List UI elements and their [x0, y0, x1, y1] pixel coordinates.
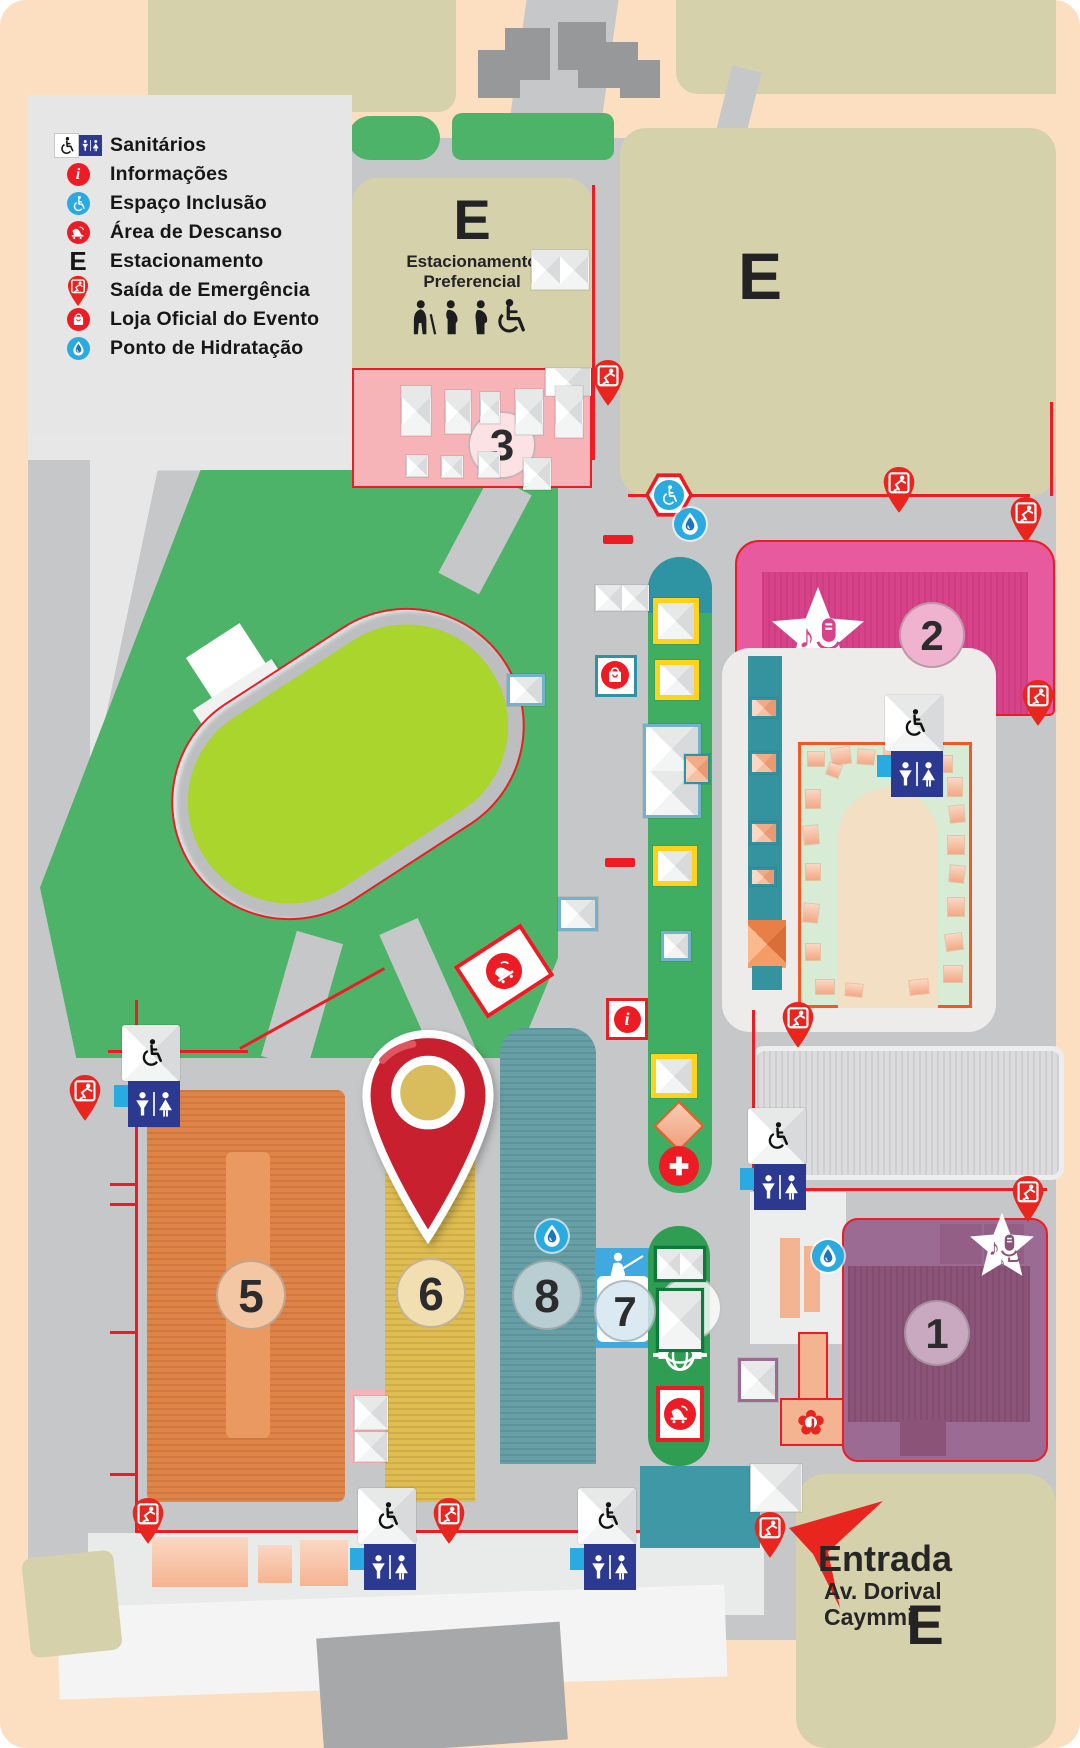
road-dash-2 [605, 858, 635, 867]
wheelchair-icon [372, 1499, 402, 1532]
parking-letter-icon: E [46, 247, 110, 276]
emergency-exit-pin [881, 465, 917, 515]
legend-label: Sanitários [110, 134, 206, 157]
food-stall [831, 747, 851, 765]
restrooms-cluster [358, 1488, 420, 1592]
parking-letter-top-right: E [700, 238, 820, 314]
preferential-letter: E [453, 192, 490, 248]
map-tile [653, 846, 697, 886]
event-venue-map: E E Estacionamento Preferencial ♪♪ i [0, 0, 1080, 1748]
food-stall [944, 966, 962, 982]
map-tile [441, 456, 463, 478]
legend-item-hidratacao: Ponto de Hidratação [46, 334, 340, 363]
map-tile [653, 598, 699, 644]
map-tile [558, 897, 598, 931]
emergency-exit-pin [752, 1510, 788, 1560]
map-tile [684, 754, 710, 784]
map-tile [750, 752, 778, 774]
hydration-icon [46, 334, 110, 363]
preferential-line2: Preferencial [423, 272, 520, 292]
stalls-teal-stub [752, 966, 782, 990]
khaki-sw-wedge [21, 1549, 123, 1658]
area-8-marker: 8 [512, 1260, 582, 1330]
map-tile [478, 452, 500, 478]
map-tile [480, 392, 500, 424]
flower-icon [796, 1408, 826, 1438]
area-2-marker: 2 [899, 602, 965, 668]
male-female-panel [584, 1544, 636, 1590]
emergency-exit-pin [780, 1000, 816, 1050]
rest-area-icon [46, 218, 110, 247]
rest-area-tile [656, 1386, 704, 1442]
legend-label: Saída de Emergência [110, 279, 310, 302]
area1-salmon-slab-1 [780, 1238, 800, 1318]
map-tile [595, 585, 649, 611]
legend-label: Área de Descanso [110, 221, 282, 244]
hydration-icon [536, 1220, 568, 1252]
legend-panel: Sanitários i Informações Espaço Inclusão… [28, 95, 352, 435]
restrooms-cluster [885, 695, 947, 799]
legend-item-saida-emergencia: Saída de Emergência [46, 276, 340, 305]
map-tile [445, 390, 471, 434]
purple-border-tile [738, 1358, 778, 1402]
emergency-exit-pin [1010, 1174, 1046, 1224]
map-tile [515, 389, 543, 435]
bottom-building-1 [152, 1537, 248, 1587]
location-pin-icon [352, 1026, 504, 1258]
food-stall [948, 898, 964, 916]
emergency-exit-pin [67, 1073, 103, 1123]
bottom-dark-road [316, 1622, 568, 1748]
legend-item-loja-oficial: Loja Oficial do Evento [46, 305, 340, 334]
emergency-exit-pin [130, 1496, 166, 1546]
boundary-tick [110, 1203, 138, 1206]
food-stall [845, 983, 862, 997]
green-strip-small [348, 116, 440, 160]
map-tile [523, 458, 551, 490]
food-stall [948, 778, 962, 796]
map-tile [750, 698, 778, 718]
map-tile [354, 1396, 388, 1430]
emergency-exit-icon [46, 276, 110, 305]
food-stall [803, 825, 819, 844]
entrance-street-2: Caymmi [824, 1604, 984, 1631]
map-tile [401, 386, 431, 436]
food-stall [909, 979, 928, 995]
map-tile [507, 674, 545, 706]
official-store-icon [46, 305, 110, 334]
first-aid-icon [659, 1146, 699, 1186]
male-female-panel [128, 1081, 180, 1127]
map-tile [661, 931, 691, 961]
info-icon: i [46, 160, 110, 189]
entrance-teal-bar [640, 1466, 760, 1548]
area-7-marker: 7 [594, 1280, 656, 1342]
boundary-tick [110, 1473, 138, 1476]
map-tile [750, 1464, 802, 1512]
food-stall [949, 865, 965, 882]
parking-lot-top-right [620, 128, 1056, 496]
wheelchair-icon [136, 1036, 166, 1069]
food-court-arch [838, 788, 938, 1008]
food-stall [945, 933, 963, 951]
legend-label: Estacionamento [110, 250, 263, 273]
boundary-tick [110, 1331, 138, 1334]
boundary-area3-right [592, 185, 595, 460]
wheelchair-icon [899, 706, 929, 739]
svg-text:♪: ♪ [998, 1255, 1005, 1272]
map-tile [354, 1432, 388, 1462]
map-tile [406, 455, 428, 477]
legend-label: Loja Oficial do Evento [110, 308, 319, 331]
food-stall [857, 749, 874, 764]
bottom-building-2 [258, 1545, 292, 1583]
food-stall [948, 836, 964, 854]
bottom-building-3 [300, 1540, 348, 1586]
emergency-exit-pin [590, 358, 626, 408]
boundary-tick [110, 1183, 138, 1186]
map-tile [654, 1246, 706, 1282]
official-store-icon [595, 655, 637, 697]
legend-label: Espaço Inclusão [110, 192, 267, 215]
emergency-exit-pin [1008, 495, 1044, 545]
map-tile [555, 386, 583, 438]
boundary-stage-right [1050, 402, 1053, 496]
emergency-exit-pin [1020, 678, 1056, 728]
restrooms-cluster [578, 1488, 640, 1592]
legend-item-informacoes: i Informações [46, 160, 340, 189]
food-stall [808, 752, 824, 766]
food-stall [806, 790, 820, 808]
map-tile [750, 868, 776, 886]
stalls-orange-tile [748, 920, 786, 968]
legend-label: Informações [110, 163, 228, 186]
map-tile [750, 822, 778, 844]
preferential-line1: Estacionamento [406, 252, 537, 272]
info-icon: i [606, 998, 648, 1040]
emergency-exit-pin [431, 1496, 467, 1546]
road-dash-1 [603, 535, 633, 544]
food-stall [803, 903, 819, 922]
legend-item-area-descanso: Área de Descanso [46, 218, 340, 247]
entrance-street-1: Av. Dorival [824, 1578, 1004, 1605]
restrooms-cluster [748, 1108, 810, 1212]
map-tile [651, 1054, 697, 1098]
wheelchair-icon [592, 1499, 622, 1532]
map-tile [655, 660, 699, 700]
restroom-icon [46, 131, 110, 160]
food-stall [806, 944, 820, 960]
priority-persons-icon [409, 298, 535, 338]
green-strip-large [452, 113, 614, 160]
male-female-panel [891, 751, 943, 797]
legend-item-sanitarios: Sanitários [46, 131, 340, 160]
hydration-icon [812, 1240, 844, 1272]
food-stall [806, 864, 820, 880]
male-female-panel [754, 1164, 806, 1210]
hydration-icon [674, 508, 706, 540]
male-female-panel [364, 1544, 416, 1590]
map-tile [531, 250, 589, 290]
area-1-marker: 1 [904, 1300, 970, 1366]
restrooms-cluster [122, 1025, 184, 1129]
area-6-marker: 6 [396, 1258, 466, 1328]
area-5-marker: 5 [216, 1260, 286, 1330]
legend-item-espaco-inclusao: Espaço Inclusão [46, 189, 340, 218]
map-tile [656, 1288, 704, 1352]
entrance-title: Entrada [818, 1538, 1018, 1580]
food-stall [816, 980, 834, 994]
food-stall [949, 805, 965, 822]
wheelchair-icon [762, 1119, 792, 1152]
inclusion-icon [46, 189, 110, 218]
legend-item-estacionamento: E Estacionamento [46, 247, 340, 276]
legend-label: Ponto de Hidratação [110, 337, 303, 360]
